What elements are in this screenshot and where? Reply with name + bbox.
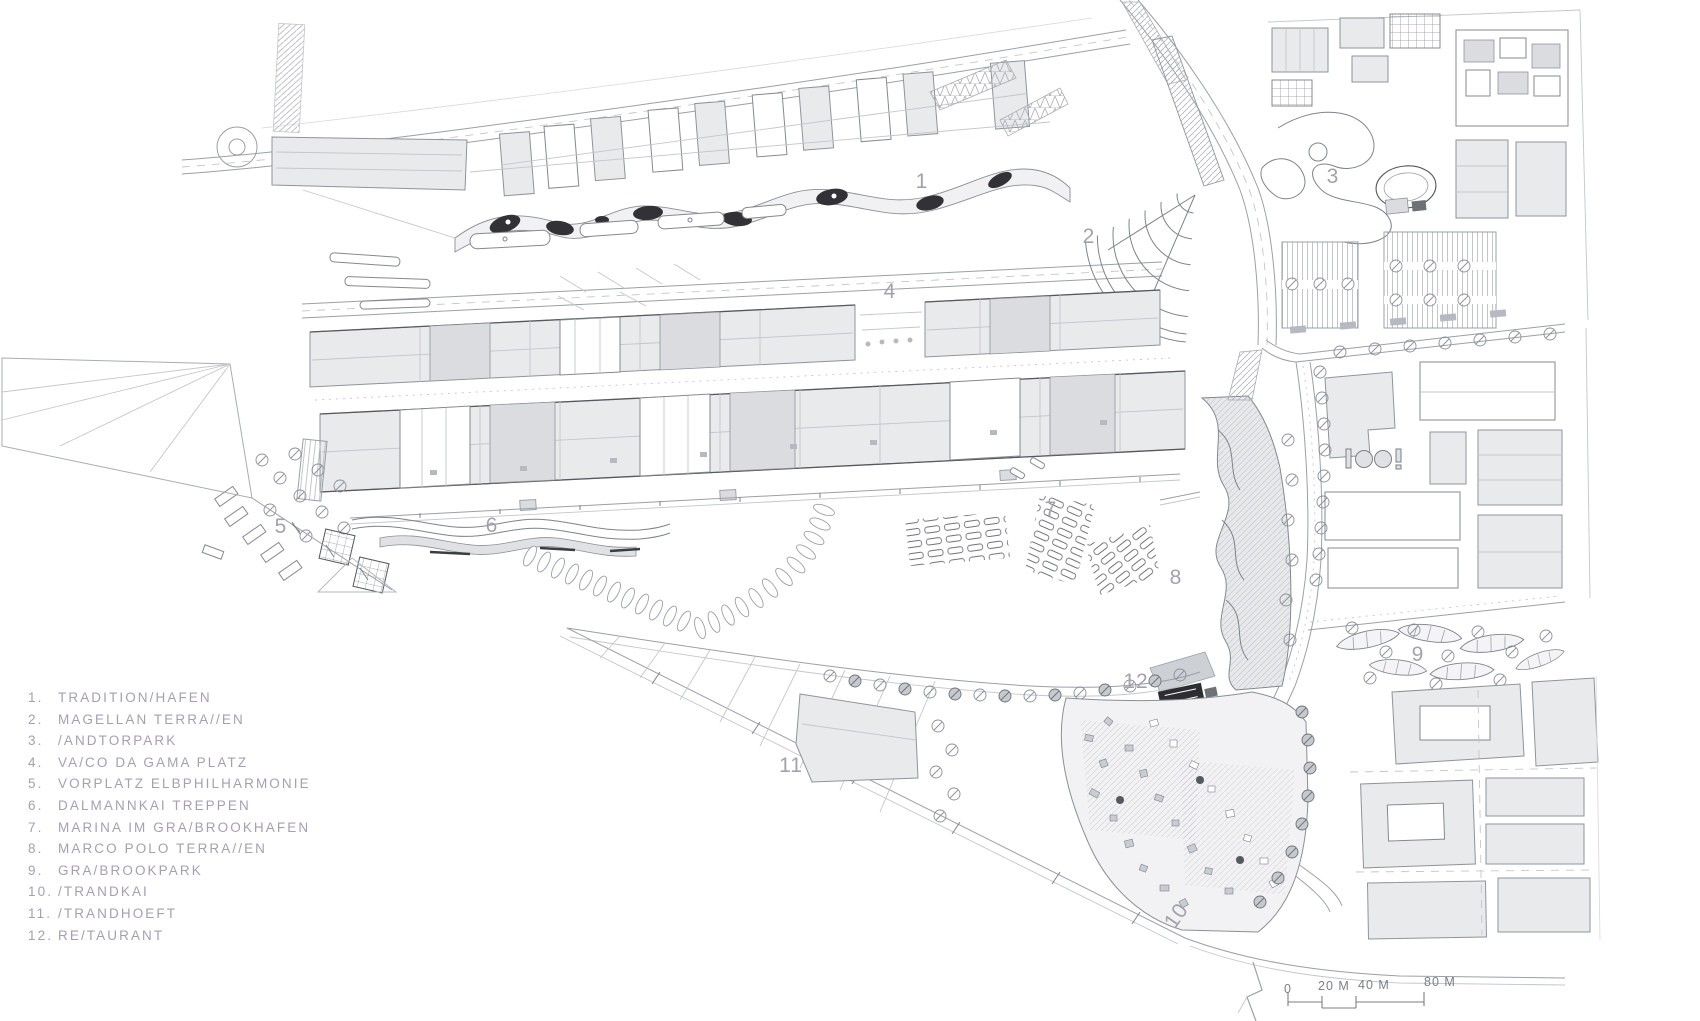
- legend-item-label: GRA/BROOKPARK: [58, 860, 203, 882]
- checker-pavilions: [319, 529, 389, 593]
- legend-item: 6.DALMANNKAI TREPPEN: [28, 795, 311, 817]
- legend-item: 8.MARCO POLO TERRA//EN: [28, 838, 311, 860]
- legend-item: 11./TRANDHOEFT: [28, 903, 311, 925]
- vasco-da-gama-platz: [860, 312, 922, 347]
- grasbrookpark-planting: [1308, 596, 1566, 690]
- legend-item-label: /TRANDKAI: [58, 881, 149, 903]
- plan-label-3: 3: [1327, 165, 1340, 189]
- parking-rows: [1282, 232, 1496, 328]
- legend-item-label: TRADITION/HAFEN: [58, 687, 212, 709]
- scale-20m-label: 20 M: [1318, 979, 1350, 993]
- speicher-block: [272, 137, 467, 190]
- legend-item-number: 9.: [28, 860, 58, 882]
- legend-item: 4.VA/CO DA GAMA PLATZ: [28, 752, 311, 774]
- site-plan-sheet: 1.TRADITION/HAFEN 2.MAGELLAN TERRA//EN 3…: [0, 0, 1700, 1021]
- legend-item-number: 10.: [28, 881, 58, 903]
- plan-label-9: 9: [1412, 643, 1425, 667]
- legend-item-label: DALMANNKAI TREPPEN: [58, 795, 251, 817]
- marina-grasbrookhafen-boats: [905, 457, 1200, 595]
- legend-item-number: 3.: [28, 730, 58, 752]
- legend-item: 9.GRA/BROOKPARK: [28, 860, 311, 882]
- plan-label-5: 5: [275, 515, 288, 539]
- legend-item-number: 4.: [28, 752, 58, 774]
- plan-label-6: 6: [486, 514, 499, 538]
- legend-item-number: 12.: [28, 925, 58, 947]
- legend-item: 1.TRADITION/HAFEN: [28, 687, 311, 709]
- scale-40m-label: 40 M: [1358, 978, 1390, 992]
- sandtorpark-ne-building: [1456, 30, 1568, 126]
- plan-label-8: 8: [1170, 566, 1183, 590]
- scale-80m-label: 80 M: [1424, 975, 1456, 989]
- legend-item-label: VORPLATZ ELBPHILHARMONIE: [58, 773, 311, 795]
- plan-label-11: 11: [779, 754, 803, 778]
- north-zigzag-mark: [1247, 962, 1262, 1021]
- sandtorpark-district: [1261, 10, 1588, 334]
- plan-label-7: 7: [1045, 498, 1058, 522]
- legend: 1.TRADITION/HAFEN 2.MAGELLAN TERRA//EN 3…: [28, 687, 311, 946]
- dalmannkai-south-row: [320, 371, 1185, 510]
- legend-item-number: 7.: [28, 817, 58, 839]
- plan-label-2: 2: [1083, 225, 1096, 249]
- plan-label-12: 12: [1123, 670, 1148, 694]
- dalmannkai-treppen: [352, 517, 670, 556]
- plan-label-4: 4: [884, 280, 897, 304]
- legend-item-label: VA/CO DA GAMA PLATZ: [58, 752, 248, 774]
- sandtorkai-building-row: [497, 61, 1032, 196]
- legend-item-number: 1.: [28, 687, 58, 709]
- legend-item-label: RE/TAURANT: [58, 925, 164, 947]
- legend-item-label: MARCO POLO TERRA//EN: [58, 838, 267, 860]
- scale-bar-graphic: [1288, 992, 1424, 1008]
- legend-item-number: 11.: [28, 903, 58, 925]
- legend-item: 12.RE/TAURANT: [28, 925, 311, 947]
- scale-zero-label: 0: [1284, 982, 1292, 996]
- plan-label-1: 1: [916, 170, 929, 194]
- legend-item: 5.VORPLATZ ELBPHILHARMONIE: [28, 773, 311, 795]
- strandkai-village: [1061, 692, 1316, 932]
- legend-item-label: MAGELLAN TERRA//EN: [58, 709, 245, 731]
- bottom-right-blocks: [1350, 676, 1600, 940]
- grasbrook-block: [1310, 328, 1590, 598]
- legend-item-label: MARINA IM GRA/BROOKHAFEN: [58, 817, 310, 839]
- legend-item-number: 6.: [28, 795, 58, 817]
- legend-item: 2.MAGELLAN TERRA//EN: [28, 709, 311, 731]
- legend-item-number: 2.: [28, 709, 58, 731]
- legend-item-number: 8.: [28, 838, 58, 860]
- legend-item: 7.MARINA IM GRA/BROOKHAFEN: [28, 817, 311, 839]
- legend-item: 3./ANDTORPARK: [28, 730, 311, 752]
- oval-building: [1374, 163, 1438, 215]
- zigzag-tail: [1238, 997, 1247, 1013]
- legend-item-label: /TRANDHOEFT: [58, 903, 177, 925]
- legend-item-label: /ANDTORPARK: [58, 730, 177, 752]
- legend-item: 10./TRANDKAI: [28, 881, 311, 903]
- legend-item-number: 5.: [28, 773, 58, 795]
